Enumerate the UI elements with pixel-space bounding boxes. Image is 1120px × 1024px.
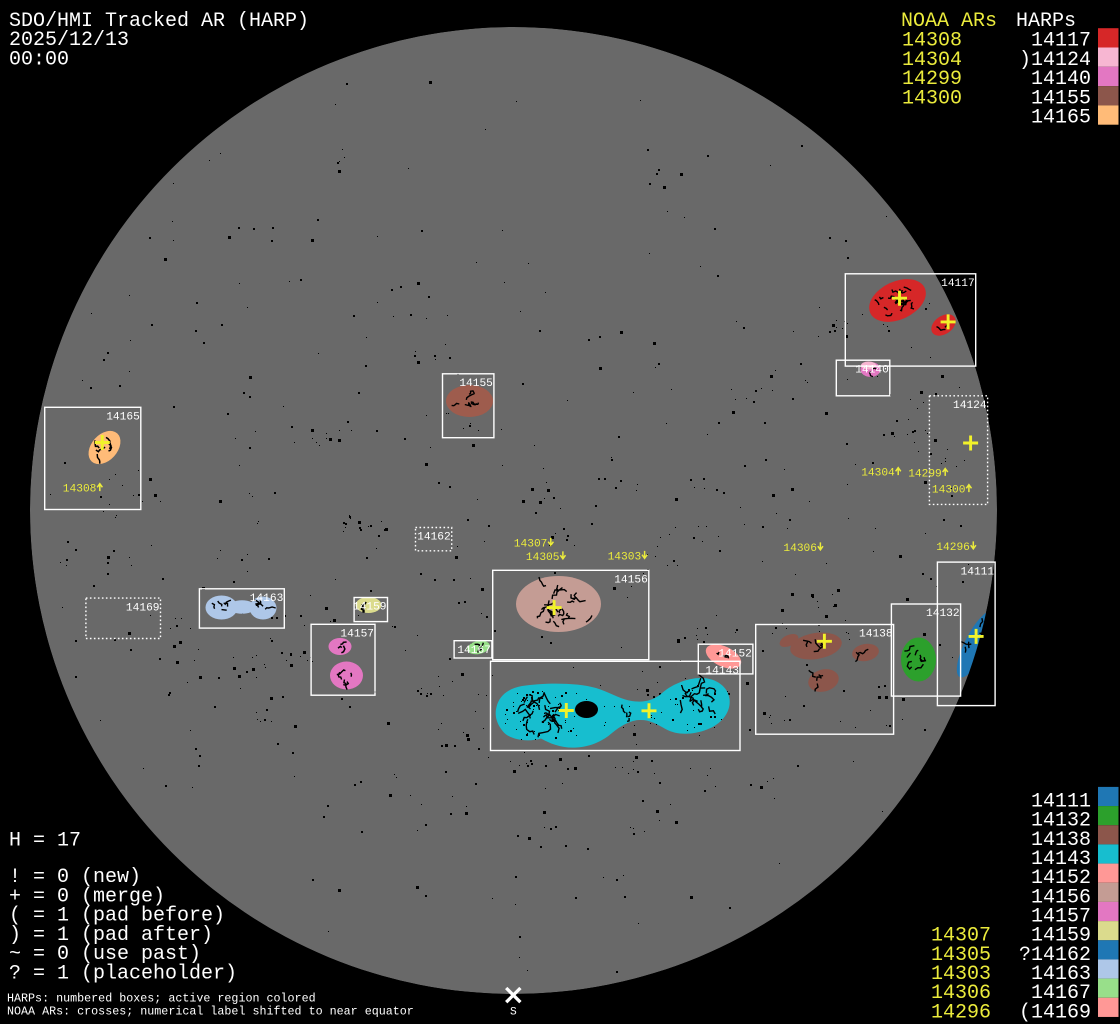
svg-text:14165: 14165 [1031, 107, 1091, 130]
svg-text:? = 1 (placeholder): ? = 1 (placeholder) [9, 963, 237, 986]
svg-text:14132: 14132 [926, 608, 960, 620]
svg-text:14156: 14156 [614, 575, 648, 587]
svg-text:HARPs: numbered boxes; active: HARPs: numbered boxes; active region col… [7, 992, 316, 1006]
svg-text:14159: 14159 [353, 602, 387, 614]
svg-text:14296: 14296 [936, 542, 970, 554]
svg-text:14124: 14124 [953, 400, 987, 412]
svg-text:14169: 14169 [126, 602, 160, 614]
svg-text:14111: 14111 [961, 566, 995, 578]
svg-text:H = 17: H = 17 [9, 830, 81, 853]
svg-text:14155: 14155 [459, 378, 493, 390]
svg-text:14300: 14300 [902, 87, 962, 110]
svg-text:14140: 14140 [855, 364, 889, 376]
svg-text:14307: 14307 [514, 539, 548, 551]
svg-text:S: S [510, 1007, 517, 1019]
svg-text:14300: 14300 [932, 485, 966, 497]
svg-text:14305: 14305 [526, 552, 560, 564]
svg-text:14165: 14165 [106, 412, 140, 424]
svg-text:14299: 14299 [908, 468, 942, 480]
svg-text:14157: 14157 [340, 629, 374, 641]
svg-text:14308: 14308 [63, 484, 97, 496]
svg-text:14296: 14296 [931, 1001, 991, 1024]
svg-text:14152: 14152 [718, 648, 752, 660]
svg-text:14303: 14303 [608, 552, 642, 564]
svg-text:14304: 14304 [861, 468, 895, 480]
svg-text:14143: 14143 [705, 666, 739, 678]
svg-text:14163: 14163 [250, 593, 284, 605]
svg-text:14117: 14117 [941, 278, 975, 290]
svg-text:00:00: 00:00 [9, 48, 69, 71]
svg-text:14162: 14162 [417, 532, 451, 544]
svg-text:14167: 14167 [457, 645, 491, 657]
svg-text:14306: 14306 [783, 543, 817, 555]
svg-text:14138: 14138 [859, 629, 893, 641]
svg-text:(14169: (14169 [1019, 1001, 1091, 1024]
svg-text:NOAA ARs: crosses; numerical l: NOAA ARs: crosses; numerical label shift… [7, 1005, 414, 1019]
